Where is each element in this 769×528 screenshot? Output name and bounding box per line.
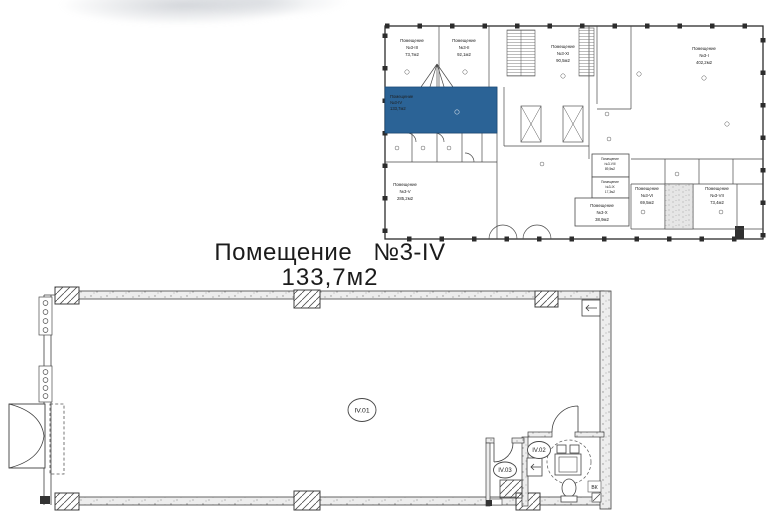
svg-text:№3-XI: №3-XI xyxy=(557,51,570,56)
svg-text:73,4м2: 73,4м2 xyxy=(710,200,724,205)
wall-fixture xyxy=(582,300,600,316)
svg-text:Помещение: Помещение xyxy=(452,38,476,43)
svg-text:Помещение: Помещение xyxy=(393,182,417,187)
facade-windows xyxy=(39,297,52,402)
svg-text:73,7м2: 73,7м2 xyxy=(405,52,419,57)
room-id-iv03: IV.03 xyxy=(498,468,512,474)
svg-text:89,5м2: 89,5м2 xyxy=(605,167,615,171)
svg-text:№3-I: №3-I xyxy=(699,53,709,58)
svg-text:Помещение: Помещение xyxy=(601,180,619,184)
room-id-iv02: IV.02 xyxy=(532,448,546,454)
svg-text:92,1м2: 92,1м2 xyxy=(457,52,471,57)
svg-text:285,2м2: 285,2м2 xyxy=(397,196,414,201)
svg-text:№3-X: №3-X xyxy=(596,210,607,215)
svg-text:Помещение: Помещение xyxy=(635,186,659,191)
svg-text:90,5м2: 90,5м2 xyxy=(556,58,570,63)
svg-text:№3-V: №3-V xyxy=(399,189,410,194)
svg-text:№3-VI: №3-VI xyxy=(641,193,654,198)
svg-text:69,5м2: 69,5м2 xyxy=(640,200,654,205)
corner-fixture xyxy=(592,493,601,502)
room-id-iv01: IV.01 xyxy=(354,408,369,415)
svg-text:Помещение: Помещение xyxy=(551,44,575,49)
toilet-icon xyxy=(561,479,577,502)
wheelchair-icon xyxy=(555,445,581,475)
svg-text:402,2м2: 402,2м2 xyxy=(696,60,713,65)
overview-plan: Помещение №3-III 73,7м2 Помещение №3-II … xyxy=(377,14,769,246)
svg-text:№3-III: №3-III xyxy=(406,45,418,50)
header-watermark-swoosh xyxy=(48,0,348,30)
floorplan-page: Помещение №3-III 73,7м2 Помещение №3-II … xyxy=(0,0,769,528)
detail-plan: ВК IV.01 IV.02 IV.03 xyxy=(8,286,620,526)
svg-text:Помещение: Помещение xyxy=(601,157,619,161)
svg-text:Помещение: Помещение xyxy=(692,46,716,51)
selected-room-title: Помещение №3-IV xyxy=(150,240,510,265)
svg-text:38,9м2: 38,9м2 xyxy=(595,217,609,222)
svg-text:№3-IX: №3-IX xyxy=(605,185,615,189)
svg-text:Помещение: Помещение xyxy=(400,38,424,43)
svg-text:133,7м2: 133,7м2 xyxy=(390,106,406,111)
svg-text:№3-II: №3-II xyxy=(459,45,470,50)
svg-text:№3-IV: №3-IV xyxy=(390,100,402,105)
entrance-door xyxy=(9,404,64,474)
selected-room-title-block: Помещение №3-IV 133,7м2 xyxy=(150,240,510,290)
vk-annotation: ВК xyxy=(591,485,597,491)
svg-text:№3-VIII: №3-VIII xyxy=(604,162,615,166)
svg-text:Помещение: Помещение xyxy=(390,94,414,99)
svg-text:Помещение: Помещение xyxy=(590,203,614,208)
svg-text:17,3м2: 17,3м2 xyxy=(605,190,615,194)
detail-columns xyxy=(55,287,558,510)
svg-text:Помещение: Помещение xyxy=(705,186,729,191)
svg-text:№3-VII: №3-VII xyxy=(710,193,724,198)
